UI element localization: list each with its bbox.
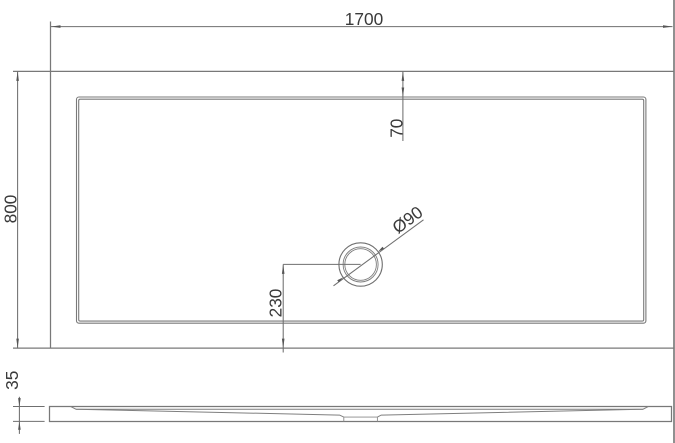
- svg-text:70: 70: [386, 119, 406, 138]
- svg-text:800: 800: [1, 195, 21, 224]
- svg-text:230: 230: [266, 289, 286, 318]
- svg-text:1700: 1700: [345, 9, 383, 29]
- svg-text:35: 35: [2, 371, 22, 390]
